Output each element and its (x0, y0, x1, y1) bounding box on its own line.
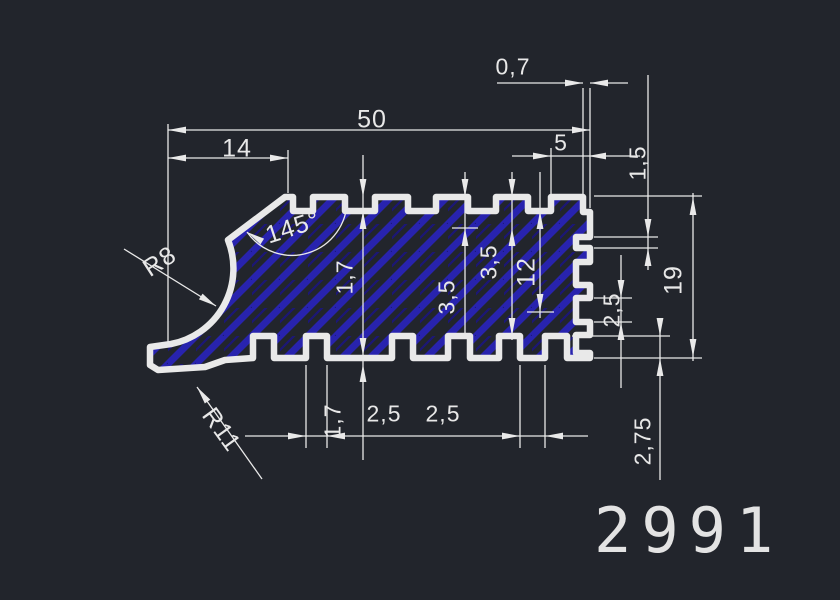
dim-label-1-7-bottom: 1,7 (322, 404, 345, 439)
dim-label-1-5: 1,5 (627, 146, 650, 181)
dim-label-2-5-bottom-a: 2,5 (367, 403, 402, 426)
dim-label-19: 19 (662, 265, 687, 295)
part-number: 2991 (594, 500, 783, 562)
dim-label-0-7: 0,7 (496, 56, 531, 79)
dim-label-3-5-a: 3,5 (436, 280, 459, 315)
dim-label-2-75: 2,75 (632, 417, 655, 466)
dim-label-12: 12 (515, 257, 540, 287)
dim-label-14: 14 (222, 137, 252, 162)
dim-label-1-7-top: 1,7 (334, 260, 357, 295)
cad-viewport: { "app": { "type": "cad-drawing-viewer" … (0, 0, 840, 600)
dim-label-2-5-bottom-b: 2,5 (426, 403, 461, 426)
dim-label-50: 50 (357, 108, 387, 133)
dim-label-3-5-b: 3,5 (478, 245, 501, 280)
dim-label-2-5-right: 2,5 (601, 293, 624, 328)
dim-label-5: 5 (554, 132, 568, 155)
